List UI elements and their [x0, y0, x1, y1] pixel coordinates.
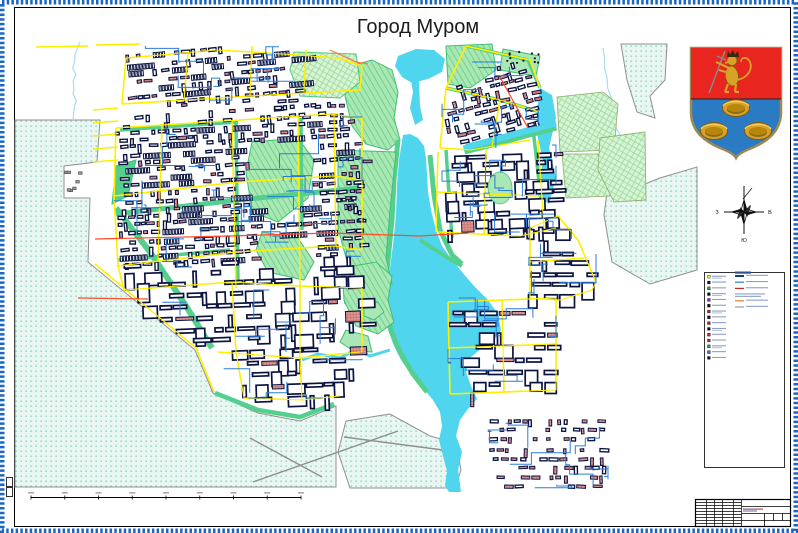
svg-text:Ю: Ю [741, 238, 747, 244]
svg-text:В: В [768, 210, 772, 216]
svg-text:Город Муром: Город Муром [357, 16, 479, 38]
